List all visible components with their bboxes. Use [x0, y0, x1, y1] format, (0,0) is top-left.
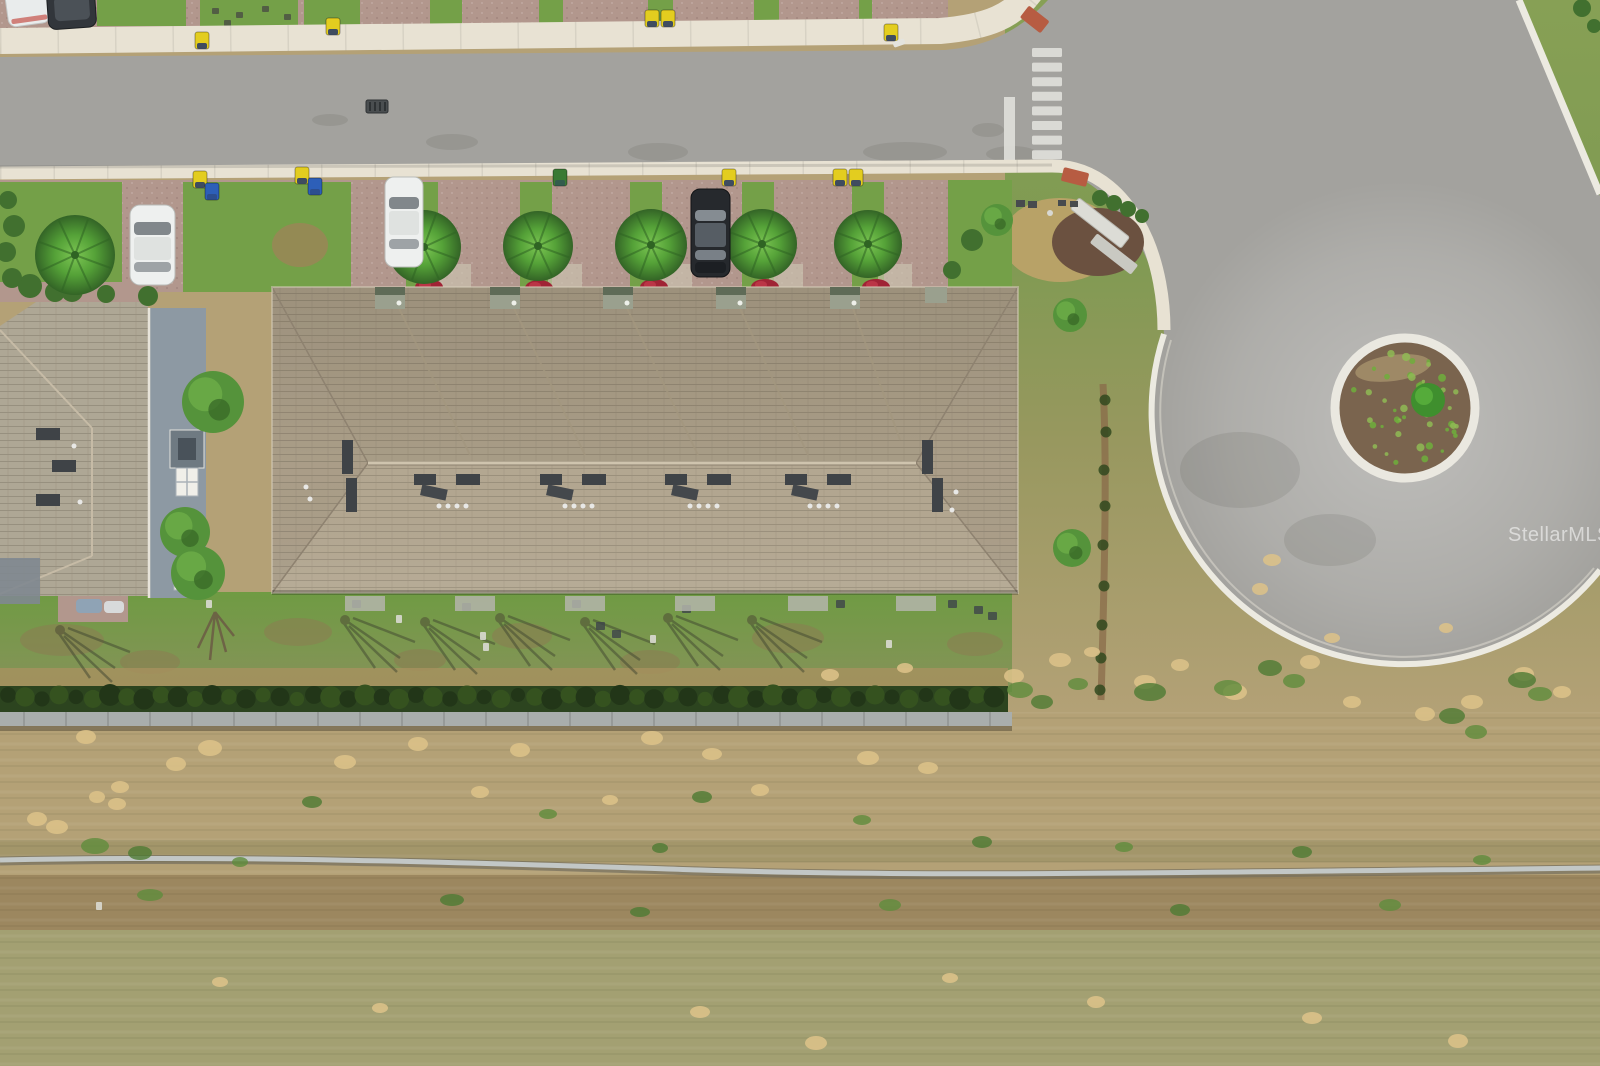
palm-tree	[727, 209, 797, 279]
road-stain	[426, 134, 478, 150]
hedge-bush	[221, 689, 237, 705]
hedge-bush	[797, 689, 817, 709]
hedge-bush	[271, 688, 290, 707]
island-plant-speckle	[1438, 374, 1446, 382]
notch-detail	[397, 301, 402, 306]
island-plant-speckle	[1393, 460, 1398, 465]
trash-bin	[553, 169, 567, 186]
island-plant-speckle	[1421, 455, 1428, 462]
hedge-bush	[595, 691, 611, 707]
palm-crown	[647, 241, 655, 249]
green-weed-tuft	[1439, 708, 1465, 724]
island-plant-speckle	[1400, 405, 1408, 413]
roof-upper-slope	[272, 287, 1018, 463]
roof-courtyard-notch	[925, 287, 947, 303]
boundary-shrub-clump	[1098, 540, 1109, 551]
bin-base	[886, 35, 896, 41]
trash-bin	[195, 32, 209, 49]
yard-item	[284, 14, 291, 20]
utility-marker	[1047, 210, 1053, 216]
island-plant-speckle	[1441, 449, 1444, 452]
pipe-vent	[581, 504, 586, 509]
sand-patch	[108, 798, 126, 810]
palm-crown	[864, 240, 872, 248]
hedge-bush	[423, 687, 443, 707]
hedge-bush	[610, 685, 630, 705]
pipe-vent	[688, 504, 693, 509]
island-plant-speckle	[1445, 428, 1449, 432]
hedge-bush	[168, 687, 188, 707]
bin-base	[197, 43, 207, 49]
hedge-bush	[290, 692, 304, 706]
trash-bin	[833, 169, 847, 186]
green-weed-tuft	[1473, 855, 1491, 865]
stop-bar	[1004, 97, 1015, 161]
north-grass-strip	[97, 0, 186, 26]
hedge-bush	[84, 690, 102, 708]
bin-base	[663, 21, 673, 27]
notch-detail	[852, 301, 857, 306]
hedge-bush	[816, 687, 832, 703]
sand-patch	[1439, 623, 1453, 633]
parked-suv-topleft-dark	[46, 0, 97, 30]
island-plant-speckle	[1395, 431, 1401, 437]
hedge-bush	[663, 687, 678, 702]
hedge-bush	[885, 690, 900, 705]
crosswalk-stripe	[1032, 136, 1062, 145]
hedge-bush	[762, 684, 783, 705]
tree	[1053, 298, 1087, 332]
trash-bin	[295, 167, 309, 184]
sand-patch	[76, 730, 96, 744]
road-stain	[863, 142, 947, 162]
green-weed-tuft	[1508, 672, 1536, 688]
trash-bin	[308, 178, 322, 195]
hedge-bush	[133, 688, 154, 709]
sand-patch	[46, 820, 68, 834]
hedge-bush	[949, 688, 971, 710]
sand-patch	[641, 731, 663, 745]
bin-base	[724, 180, 734, 186]
patio-item	[974, 606, 983, 614]
notch-shadow	[490, 287, 520, 295]
white-debris	[480, 632, 486, 640]
island-plant-speckle	[1382, 398, 1387, 403]
green-weed-tuft	[1258, 660, 1282, 676]
notch-detail	[512, 301, 517, 306]
scene-canvas	[0, 0, 1600, 1066]
sand-patch	[751, 784, 769, 796]
boundary-shrub-clump	[1101, 427, 1112, 438]
retaining-wall	[0, 712, 1012, 726]
hedge-bush	[934, 688, 952, 706]
hedge-bush	[442, 691, 457, 706]
trash-bin	[645, 10, 659, 27]
sand-patch	[372, 1003, 388, 1013]
hedge-bush	[477, 690, 492, 705]
trash-bin	[849, 169, 863, 186]
hedge-bush	[576, 687, 597, 708]
pipe-vent	[572, 504, 577, 509]
island-plant-speckle	[1409, 358, 1415, 364]
pipe-vent	[446, 504, 451, 509]
sand-patch	[89, 791, 105, 803]
shadow-rootball	[55, 625, 65, 635]
sand-patch	[1300, 655, 1320, 669]
sand-patch	[897, 663, 913, 673]
pipe-vent	[437, 504, 442, 509]
sand-patch	[1263, 554, 1281, 566]
road-stain	[1180, 432, 1300, 508]
hedge-bush	[50, 686, 69, 705]
road-stain	[972, 123, 1004, 137]
island-plant-speckle	[1448, 406, 1452, 410]
green-weed-tuft	[1528, 687, 1552, 701]
green-weed-tuft	[1214, 680, 1242, 696]
island-plant-speckle	[1385, 452, 1389, 456]
patio-item	[836, 600, 845, 608]
yard-item	[262, 6, 269, 12]
hedge-bush	[389, 689, 409, 709]
palm-tree	[35, 215, 115, 295]
green-weed-tuft	[1283, 674, 1305, 688]
roof-vent	[785, 474, 807, 485]
hedge-bush	[526, 688, 544, 706]
boundary-shrub-clump	[1095, 685, 1106, 696]
hedge-bush	[560, 686, 577, 703]
notch-shadow	[375, 287, 405, 295]
pipe-vent	[563, 504, 568, 509]
sand-patch	[1171, 659, 1189, 671]
green-weed-tuft	[128, 846, 152, 860]
sand-patch	[942, 973, 958, 983]
green-weed-tuft	[692, 791, 712, 803]
hedge-bush	[747, 690, 764, 707]
green-weed-tuft	[302, 796, 322, 808]
sand-patch	[702, 748, 722, 760]
white-debris	[886, 640, 892, 648]
notch-detail	[625, 301, 630, 306]
pipe-vent	[590, 504, 595, 509]
patio-item	[612, 630, 621, 638]
road-stain	[1284, 514, 1376, 566]
hedge-bush	[69, 690, 83, 704]
tree-canopy-shade	[995, 218, 1006, 229]
hedge-bush	[728, 686, 750, 708]
tree-canopy-shade	[1067, 313, 1079, 325]
shadow-rootball	[340, 615, 350, 625]
property-hedge-wall	[0, 684, 1012, 731]
sand-patch	[857, 751, 879, 765]
white-car-driveway	[385, 177, 423, 267]
eave-shadow	[272, 590, 1018, 595]
green-weed-tuft	[1031, 695, 1053, 709]
hedge-bush	[202, 685, 222, 705]
island-plant-speckle	[1422, 380, 1425, 383]
sand-patch	[471, 786, 489, 798]
notch-detail	[738, 301, 743, 306]
sand-patch	[111, 781, 129, 793]
palm-tree	[615, 209, 687, 281]
patio-item	[948, 600, 957, 608]
island-plant-speckle	[1370, 422, 1377, 429]
crosswalk-stripe	[1032, 63, 1062, 72]
sand-patch	[408, 737, 428, 751]
hedge-bush	[408, 687, 424, 703]
sand-patch	[1084, 647, 1100, 657]
bin-base	[835, 180, 845, 186]
pipe-vent	[817, 504, 822, 509]
green-weed-tuft	[972, 836, 992, 848]
hedge-bush	[511, 688, 525, 702]
pipe-vent	[835, 504, 840, 509]
island-plant-speckle	[1427, 421, 1433, 427]
island-plant-speckle	[1452, 429, 1457, 434]
hedge-bush	[153, 687, 170, 704]
hedge-bush	[900, 690, 919, 709]
sand-patch	[334, 755, 356, 769]
island-bush-highlight	[1415, 387, 1433, 405]
sand-patch	[1004, 669, 1024, 683]
hedge-bush	[492, 690, 510, 708]
hedge-bush	[782, 689, 799, 706]
island-plant-speckle	[1453, 389, 1458, 394]
island-plant-speckle	[1366, 389, 1372, 395]
crosswalk-stripe	[1032, 121, 1062, 130]
sand-patch	[918, 762, 938, 774]
road-gutter-shadow	[0, 165, 1052, 167]
crosswalk-stripe	[1032, 150, 1062, 159]
storm-drain	[366, 100, 388, 113]
pipe-vent	[715, 504, 720, 509]
green-weed-tuft	[1465, 725, 1487, 739]
tree	[981, 204, 1013, 236]
trash-bin	[326, 18, 340, 35]
sand-patch	[212, 977, 228, 987]
crosswalk-stripe	[1032, 48, 1062, 57]
sand-patch	[1448, 1034, 1468, 1048]
palm-crown	[534, 242, 542, 250]
sand-patch	[198, 740, 222, 756]
pipe-vent	[464, 504, 469, 509]
patio-item	[596, 622, 605, 630]
island-plant-speckle	[1416, 443, 1424, 451]
north-grass-strip	[430, 0, 462, 26]
trash-bin	[661, 10, 675, 27]
white-debris	[396, 615, 402, 623]
patio-item	[988, 612, 997, 620]
island-plant-speckle	[1426, 362, 1431, 367]
island-plant-speckle	[1380, 425, 1383, 428]
green-weed-tuft	[853, 815, 871, 825]
hedge-bush	[320, 686, 342, 708]
sand-patch	[1461, 695, 1483, 709]
screened-patio	[0, 558, 40, 604]
sand-patch	[166, 757, 186, 771]
hedge-bush	[99, 684, 121, 706]
tree-canopy-shade	[1069, 546, 1082, 559]
shadow-rootball	[747, 615, 757, 625]
cul-de-sac-island	[1335, 338, 1475, 478]
green-weed-tuft	[1379, 899, 1401, 911]
parked-item-blue	[76, 599, 102, 613]
sand-patch	[821, 669, 839, 681]
roof-vent	[582, 474, 606, 485]
shrub	[138, 286, 158, 306]
green-weed-tuft	[652, 843, 668, 853]
green-weed-tuft	[1068, 678, 1088, 690]
island-plant-speckle	[1402, 353, 1410, 361]
sand-patch	[1415, 707, 1435, 721]
bin-base	[310, 189, 320, 195]
aerial-photo: StellarMLS	[0, 0, 1600, 1066]
hedge-bush	[919, 688, 933, 702]
pipe-vent	[706, 504, 711, 509]
hedge-bush	[458, 685, 477, 704]
dirt-band	[0, 668, 1008, 688]
hedge-bush	[679, 688, 698, 707]
hedge-bush	[305, 686, 323, 704]
black-car-driveway	[691, 189, 730, 277]
island-plant-speckle	[1373, 444, 1378, 449]
palm-crown	[758, 240, 766, 248]
bin-base	[647, 21, 657, 27]
bin-base	[195, 182, 205, 188]
hedge-bush	[698, 692, 712, 706]
roof-vent	[827, 474, 851, 485]
boundary-shrub-clump	[1099, 465, 1110, 476]
white-debris	[96, 902, 102, 910]
trash-bin	[884, 24, 898, 41]
sand-patch	[1049, 653, 1071, 667]
bin-base	[297, 178, 307, 184]
roof-vent	[665, 474, 687, 485]
bin-base	[328, 29, 338, 35]
sand-patch	[1324, 633, 1340, 643]
island-plant-speckle	[1351, 387, 1356, 392]
island-plant-speckle	[1372, 367, 1376, 371]
green-weed-tuft	[539, 809, 557, 819]
pipe-vent	[808, 504, 813, 509]
green-weed-tuft	[232, 857, 248, 867]
green-weed-tuft	[630, 907, 650, 917]
notch-shadow	[603, 287, 633, 295]
sand-patch	[1087, 996, 1105, 1008]
lawn-brown-patch	[272, 223, 328, 267]
island-plant-speckle	[1426, 442, 1433, 449]
tree	[182, 371, 244, 433]
green-weed-tuft	[81, 838, 109, 854]
shrub	[961, 229, 983, 251]
shadow-rootball	[580, 617, 590, 627]
yard-item	[212, 8, 219, 14]
white-debris	[650, 635, 656, 643]
trash-bin	[205, 183, 219, 200]
hedge-bush	[968, 686, 985, 703]
notch-shadow	[716, 287, 746, 295]
crosswalk-stripe	[1032, 92, 1062, 101]
townhouse-building	[272, 287, 1018, 611]
notch-shadow	[830, 287, 860, 295]
shadow-rootball	[420, 617, 430, 627]
island-plant-speckle	[1408, 373, 1416, 381]
tree-canopy-shade	[208, 399, 230, 421]
green-weed-tuft	[1134, 683, 1166, 701]
shrub	[1092, 190, 1108, 206]
road-stain	[312, 114, 348, 126]
tree-canopy-shade	[194, 570, 213, 589]
parked-item-white	[104, 601, 124, 613]
shrub	[1106, 195, 1122, 211]
hedge-bush	[34, 691, 49, 706]
sand-patch	[510, 743, 530, 757]
hedge-bush	[831, 687, 851, 707]
palm-tree	[834, 210, 902, 278]
hedge-bush	[865, 685, 884, 704]
hedge-bush	[355, 684, 376, 705]
roof-vent	[414, 474, 436, 485]
hedge-bush	[339, 690, 356, 707]
hedge-bush	[15, 687, 34, 706]
shrub	[2, 268, 22, 288]
yard-item	[236, 12, 243, 18]
road-stain	[628, 143, 688, 161]
hedge-bush	[541, 688, 562, 709]
sand-patch	[602, 795, 618, 805]
island-plant-speckle	[1393, 409, 1397, 413]
roof-vent	[707, 474, 731, 485]
island-plant-speckle	[1384, 374, 1390, 380]
pipe-vent	[697, 504, 702, 509]
green-weed-tuft	[1292, 846, 1312, 858]
hedge-bush	[374, 689, 391, 706]
green-weed-tuft	[879, 899, 901, 911]
tree	[171, 546, 225, 600]
hedge-bush	[236, 689, 255, 708]
green-weed-tuft	[1170, 904, 1190, 916]
boundary-shrub-clump	[1099, 581, 1110, 592]
shrub	[1120, 201, 1136, 217]
sand-patch	[1252, 583, 1268, 595]
white-debris	[206, 600, 212, 608]
crosswalk-stripe	[1032, 77, 1062, 86]
shrub	[1135, 209, 1149, 223]
bin-base	[555, 180, 565, 186]
shrub	[97, 285, 115, 303]
left-house-shingles	[0, 302, 148, 596]
shadow-rootball	[663, 613, 673, 623]
green-weed-tuft	[1115, 842, 1133, 852]
shrub	[943, 261, 961, 279]
chimney-inner	[178, 438, 196, 460]
boundary-shrub-clump	[1097, 620, 1108, 631]
hedge-bush	[629, 689, 645, 705]
palm-tree	[503, 211, 573, 281]
trash-bin	[722, 169, 736, 186]
island-plant-speckle	[1387, 350, 1394, 357]
sand-patch	[27, 812, 47, 826]
hedge-bush	[118, 688, 135, 705]
wall-shadow	[0, 726, 1012, 731]
crosswalk-stripe	[1032, 106, 1062, 115]
hedge-bush	[984, 686, 1005, 707]
field-texture	[0, 700, 1600, 1066]
island-plant-speckle	[1454, 424, 1459, 429]
roof-vent	[540, 474, 562, 485]
sand-patch	[805, 1036, 827, 1050]
boundary-shrub-clump	[1100, 395, 1111, 406]
island-plant-speckle	[1396, 419, 1400, 423]
